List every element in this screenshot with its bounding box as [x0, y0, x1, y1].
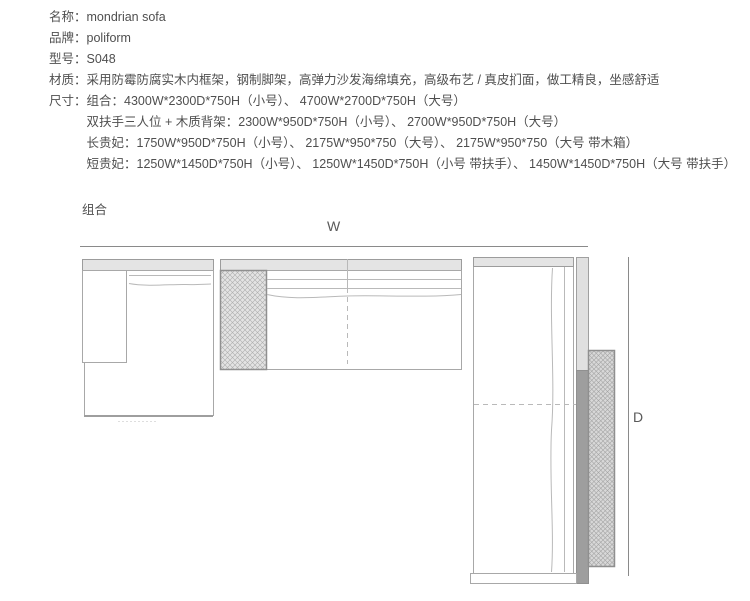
product-spec-sheet: 名称： mondrian sofa 品牌： poliform 型号： S048 … [0, 0, 750, 601]
armrest-strip-light [577, 258, 589, 371]
armrest-strip-dark [577, 371, 589, 584]
right-chaise-module [471, 258, 615, 584]
floor-plan-diagram [0, 0, 750, 601]
wood-back-frame-hatch [221, 271, 267, 370]
left-chaise-module [83, 260, 214, 422]
wood-box-hatch [589, 351, 615, 567]
center-sofa-module [221, 259, 462, 370]
